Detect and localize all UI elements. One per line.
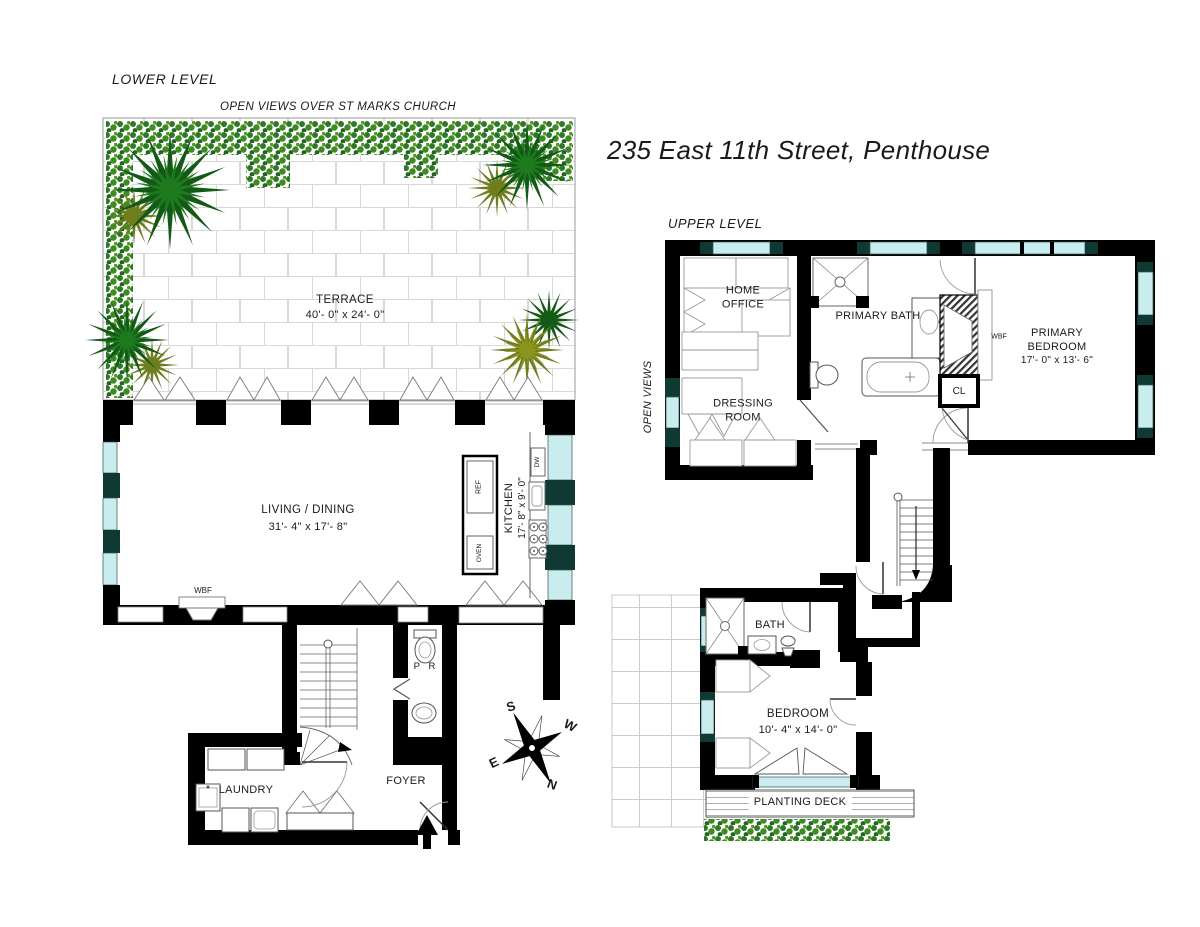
- bedroom-dims: 10'- 4" x 14'- 0": [759, 724, 838, 738]
- closet-cl: [938, 374, 980, 440]
- open-views-side: OPEN VIEWS: [642, 361, 656, 434]
- deck-hedge: [704, 819, 890, 841]
- home-office-line2: OFFICE: [722, 298, 764, 312]
- planting-deck-label: PLANTING DECK: [749, 796, 852, 810]
- laundry-label: LAUNDRY: [219, 784, 273, 798]
- compass: [472, 688, 592, 808]
- upper-hall-walls: [820, 573, 920, 662]
- home-office-line1: HOME: [722, 284, 764, 298]
- primary-bedroom-line1: PRIMARY: [1021, 327, 1093, 341]
- foyer-label: FOYER: [386, 775, 425, 789]
- dressing-line1: DRESSING: [713, 397, 773, 411]
- bedroom-label: BEDROOM: [767, 707, 829, 721]
- kitchen-dims: 17'- 8" x 9'- 0": [517, 477, 530, 539]
- primary-bedroom-dims: 17'- 0" x 13'- 6": [1021, 355, 1093, 368]
- powder-room: [393, 625, 457, 765]
- kitchen-label-group: KITCHEN 17'- 8" x 9'- 0": [503, 477, 529, 539]
- bedroom-closets: [716, 660, 770, 768]
- primary-bedroom-label: PRIMARY BEDROOM 17'- 0" x 13'- 6": [1021, 327, 1093, 367]
- upper-level-title: UPPER LEVEL: [668, 216, 762, 232]
- kitchen-label: KITCHEN: [503, 477, 517, 539]
- primary-bedroom-line2: BEDROOM: [1021, 341, 1093, 355]
- terrace-label: TERRACE: [316, 293, 374, 307]
- roof-grid: [612, 595, 708, 827]
- dressing-room-label: DRESSING ROOM: [713, 397, 773, 425]
- dressing-line2: ROOM: [713, 411, 773, 425]
- wbf-fireplace-upper: [940, 290, 992, 380]
- wbf-lower-label: WBF: [194, 586, 212, 596]
- floorplan-canvas: LOWER LEVEL OPEN VIEWS OVER ST MARKS CHU…: [0, 0, 1200, 927]
- oven-label: OVEN: [476, 544, 484, 562]
- terrace: [85, 118, 579, 400]
- home-office-label: HOME OFFICE: [722, 284, 764, 312]
- page-title: 235 East 11th Street, Penthouse: [607, 134, 990, 167]
- ref-label: REF: [476, 480, 485, 494]
- primary-bath-label: PRIMARY BATH: [836, 310, 921, 324]
- floorplan-linework: [0, 0, 1200, 927]
- living-dining-dims: 31'- 4" x 17'- 8": [269, 521, 348, 535]
- home-office-furniture: [682, 258, 790, 370]
- terrace-dims: 40'- 0" x 24'- 0": [306, 309, 385, 323]
- dw-label: DW: [534, 457, 542, 468]
- open-views-note: OPEN VIEWS OVER ST MARKS CHURCH: [220, 100, 456, 114]
- bath-label: BATH: [755, 619, 785, 633]
- stairs-upper: [856, 448, 952, 609]
- powder-room-label: P R: [414, 661, 439, 673]
- living-dining-label: LIVING / DINING: [261, 503, 355, 517]
- lower-level-title: LOWER LEVEL: [112, 71, 217, 89]
- wbf-upper-label: WBF: [991, 334, 1007, 343]
- cl-label: CL: [953, 386, 966, 399]
